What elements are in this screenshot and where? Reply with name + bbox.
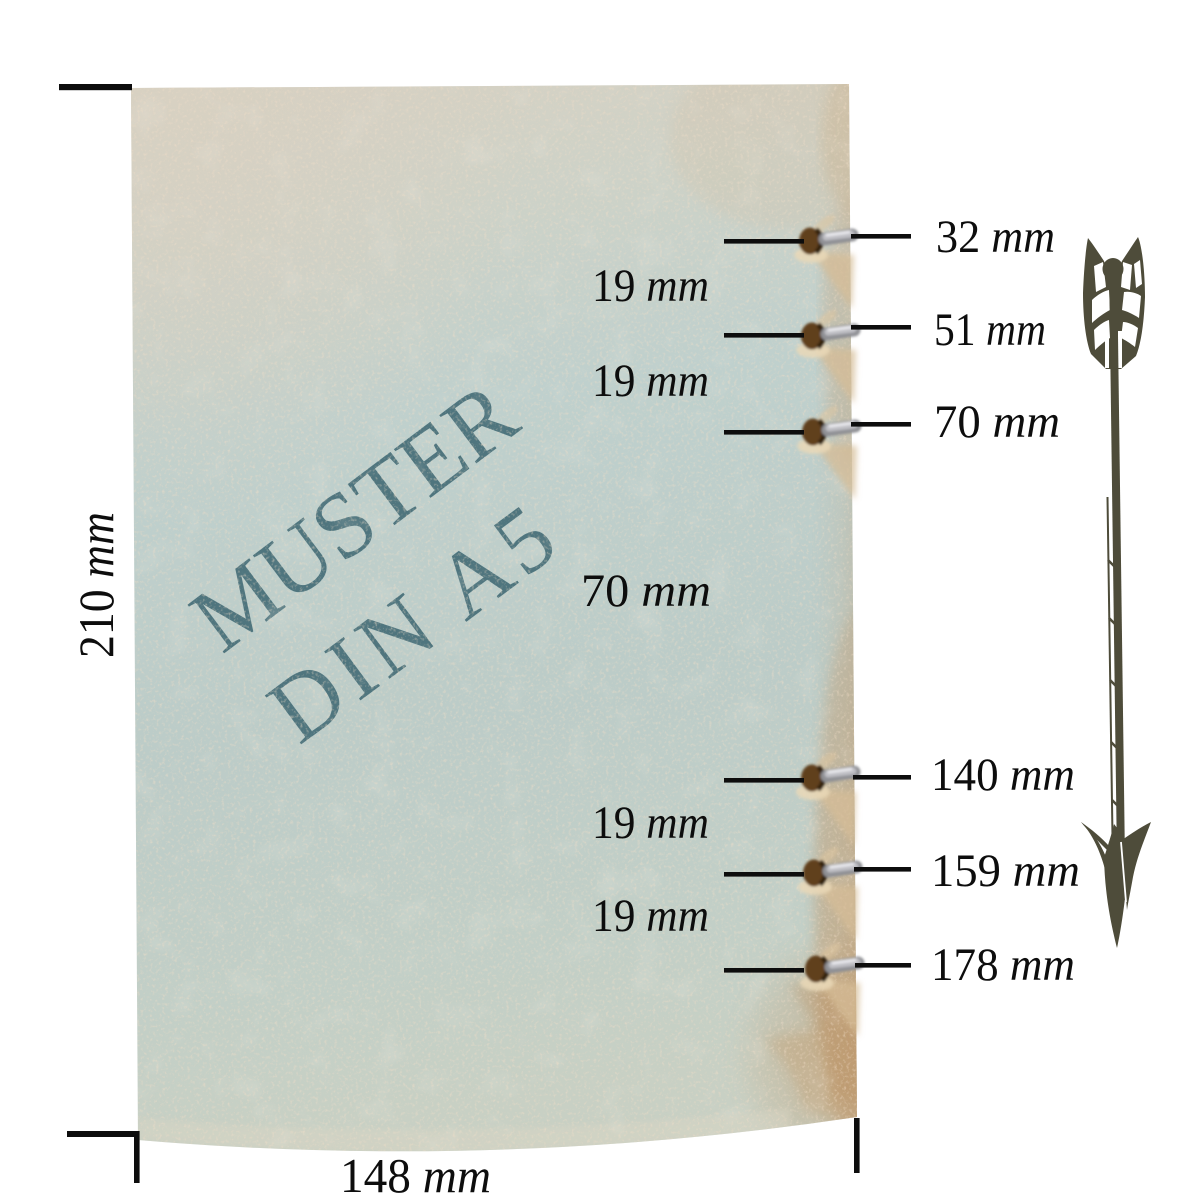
svg-text:19 mm: 19 mm	[592, 890, 709, 942]
svg-text:148 mm: 148 mm	[340, 1148, 491, 1200]
svg-text:159 mm: 159 mm	[931, 845, 1080, 897]
svg-text:32 mm: 32 mm	[936, 211, 1055, 263]
svg-text:19 mm: 19 mm	[592, 355, 709, 407]
svg-text:19 mm: 19 mm	[592, 797, 709, 849]
svg-text:178 mm: 178 mm	[931, 939, 1075, 991]
svg-text:51 mm: 51 mm	[934, 304, 1046, 356]
svg-text:19 mm: 19 mm	[592, 260, 709, 312]
svg-text:70 mm: 70 mm	[934, 396, 1060, 448]
svg-text:140 mm: 140 mm	[931, 749, 1075, 801]
svg-text:210 mm: 210 mm	[68, 512, 124, 658]
svg-text:70 mm: 70 mm	[581, 565, 711, 617]
